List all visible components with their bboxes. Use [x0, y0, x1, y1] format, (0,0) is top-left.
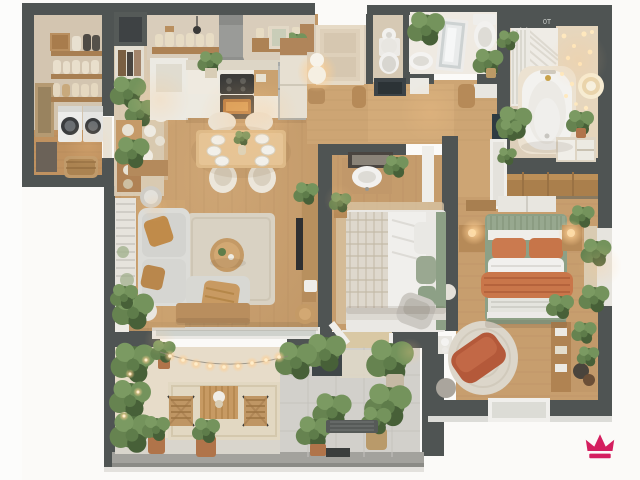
svg-text:0T: 0T: [543, 19, 552, 26]
